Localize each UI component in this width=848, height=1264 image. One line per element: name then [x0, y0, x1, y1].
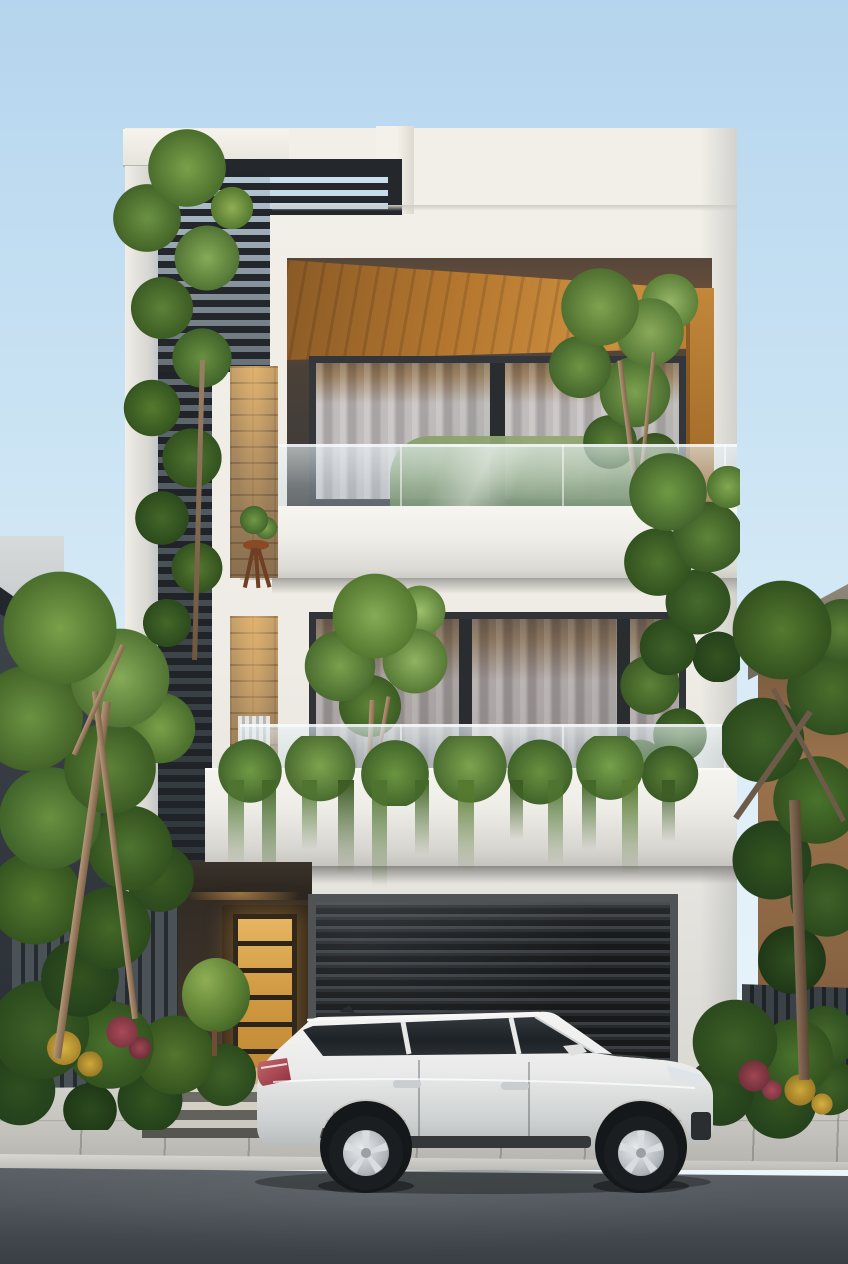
white-suv — [243, 996, 723, 1196]
middle-balcony-tree-canopy — [300, 556, 450, 741]
side-sill — [401, 1136, 591, 1148]
slender-tree-canopy — [92, 118, 277, 663]
topiary-stem — [212, 1030, 217, 1056]
rendered-photo — [0, 0, 848, 1264]
front-bumper-intake — [691, 1112, 711, 1140]
shark-fin-antenna — [339, 1005, 355, 1013]
corner-ivy-cascade — [598, 452, 740, 682]
top-floor-parapet-shadow — [272, 205, 737, 211]
door-handle — [393, 1080, 421, 1088]
front-wheel — [604, 1116, 678, 1190]
rear-wheel — [329, 1116, 403, 1190]
door-handle — [501, 1082, 529, 1090]
